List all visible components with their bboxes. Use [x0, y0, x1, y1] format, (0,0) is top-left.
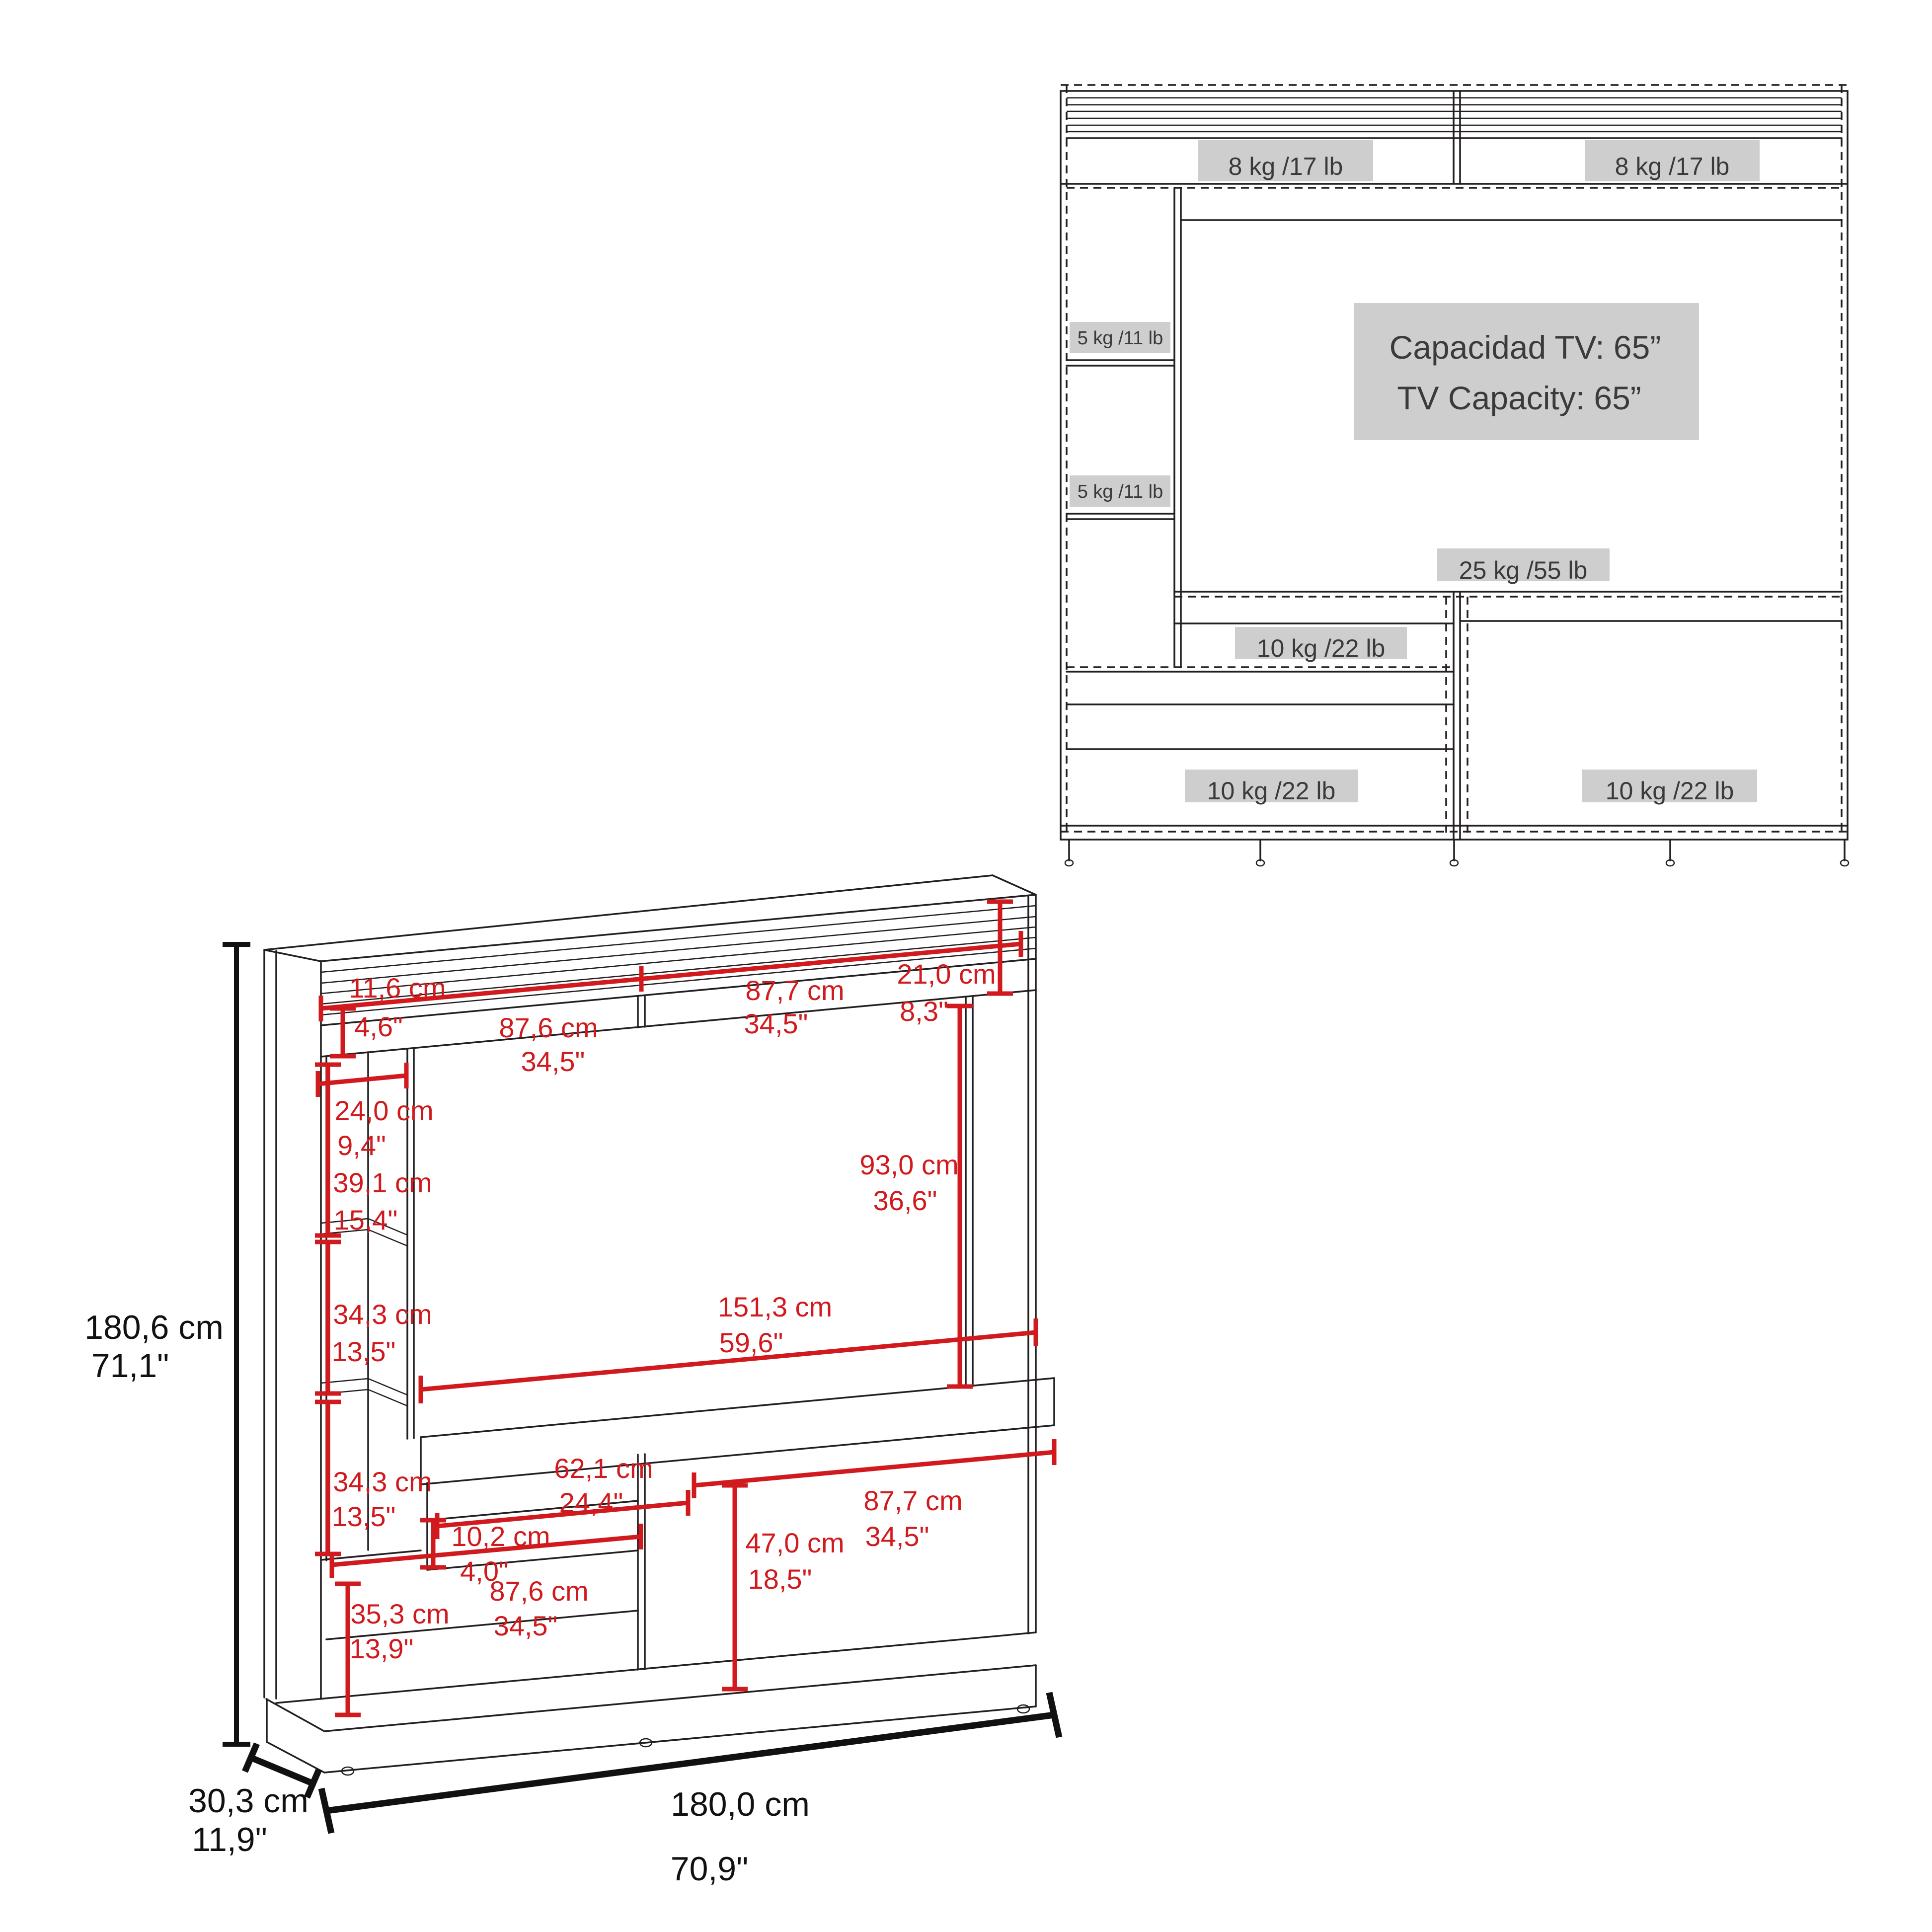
dim-tv-opening-width: 151,3 cm 59,6": [421, 1291, 1036, 1403]
dim-tower-width: 24,0 cm 9,4": [318, 1063, 434, 1161]
weight-label-text: 8 kg /17 lb: [1615, 153, 1730, 180]
weight-label-text: 8 kg /17 lb: [1229, 153, 1343, 180]
dim-tv-opening-height: 93,0 cm 36,6": [859, 1006, 973, 1387]
dim-overall-height-cm: 180,6 cm: [84, 1309, 224, 1346]
dim-cabinet-left-width-in: 34,5": [494, 1610, 558, 1641]
dim-tv-opening-height-cm: 93,0 cm: [859, 1149, 958, 1180]
dim-tower-mid-section-in: 13,5": [332, 1336, 396, 1367]
dim-tower-top-section-cm: 39,1 cm: [333, 1167, 432, 1198]
dim-cabinet-right-height-in: 18,5": [748, 1563, 812, 1595]
tv-capacity-line1: Capacidad TV: 65”: [1390, 329, 1661, 366]
dim-overall-width-in: 70,9": [671, 1850, 749, 1888]
weight-label-text: 10 kg /22 lb: [1257, 634, 1386, 662]
dim-top-shelf-height-in: 4,6": [354, 1011, 403, 1042]
dim-top-left-span-cm: 87,6 cm: [499, 1012, 598, 1043]
front-view-diagram: 8 kg /17 lb 8 kg /17 lb 5 kg /11 lb 5 kg…: [1061, 85, 1849, 866]
dim-cabinet-right-width-in: 34,5": [865, 1521, 929, 1552]
tv-capacity-label: Capacidad TV: 65” TV Capacity: 65”: [1354, 303, 1699, 440]
dim-tower-bottom-section-in: 13,5": [332, 1501, 396, 1532]
dim-overall-width-cm: 180,0 cm: [671, 1785, 810, 1823]
dim-media-shelf-width-cm: 62,1 cm: [554, 1453, 653, 1484]
furniture-spec-sheet: 8 kg /17 lb 8 kg /17 lb 5 kg /11 lb 5 kg…: [0, 0, 1932, 1932]
dim-cabinet-right-width-cm: 87,7 cm: [863, 1485, 962, 1516]
dim-top-right-span-cm: 87,7 cm: [745, 975, 844, 1006]
dim-overall-depth: 30,3 cm 11,9": [188, 1744, 319, 1858]
dim-overall-height-in: 71,1": [91, 1347, 169, 1385]
weight-label-text: 25 kg /55 lb: [1459, 556, 1588, 584]
front-view-feet: [1065, 840, 1849, 866]
dim-top-right-span-in: 34,5": [744, 1008, 808, 1039]
tv-capacity-line2: TV Capacity: 65”: [1397, 380, 1641, 416]
dim-overall-height: 180,6 cm 71,1": [84, 944, 250, 1744]
dim-overall-depth-in: 11,9": [192, 1821, 267, 1858]
dim-cabinet-right-height-cm: 47,0 cm: [745, 1527, 844, 1558]
weight-label-hutch-left: 8 kg /17 lb: [1198, 140, 1373, 181]
weight-label-side-lower: 5 kg /11 lb: [1070, 475, 1170, 507]
weight-label-text: 10 kg /22 lb: [1606, 777, 1734, 805]
dim-tower-width-cm: 24,0 cm: [334, 1095, 433, 1126]
weight-label-text: 5 kg /11 lb: [1078, 328, 1163, 349]
dim-cabinet-left-width-cm: 87,6 cm: [489, 1575, 588, 1607]
weight-label-tv-shelf: 25 kg /55 lb: [1437, 548, 1610, 584]
weight-label-text: 10 kg /22 lb: [1207, 777, 1336, 805]
weight-label-hutch-right: 8 kg /17 lb: [1585, 140, 1760, 181]
dim-cabinet-right-height: 47,0 cm 18,5": [722, 1485, 845, 1689]
dim-tv-opening-width-in: 59,6": [719, 1327, 783, 1358]
weight-label-middle-shelf: 10 kg /22 lb: [1235, 627, 1407, 662]
dim-cabinet-left-height-cm: 35,3 cm: [350, 1598, 449, 1629]
dim-hutch-height-cm: 21,0 cm: [897, 958, 996, 990]
front-view-structure: [1061, 91, 1848, 840]
dim-tower-bottom-section-cm: 34,3 cm: [333, 1466, 432, 1497]
dim-top-left-span-in: 34,5": [521, 1046, 585, 1077]
weight-label-cabinet-left: 10 kg /22 lb: [1185, 770, 1358, 805]
dim-hutch-height-in: 8,3": [900, 996, 948, 1027]
weight-label-cabinet-right: 10 kg /22 lb: [1582, 770, 1757, 805]
dim-cabinet-left-height-in: 13,9": [350, 1633, 414, 1664]
dim-media-shelf-width-in: 24,4": [559, 1487, 623, 1518]
dim-tv-opening-height-in: 36,6": [873, 1185, 937, 1216]
dim-top-shelf-height: 11,6 cm 4,6": [330, 972, 446, 1056]
dim-tv-opening-width-cm: 151,3 cm: [718, 1291, 832, 1322]
dim-overall-depth-cm: 30,3 cm: [188, 1782, 309, 1820]
dim-tower-width-in: 9,4": [337, 1130, 386, 1161]
dim-tower-top-section-in: 15,4": [334, 1204, 398, 1236]
dimension-view-diagram: 11,6 cm 4,6" 87,6 cm 34,5" 87,7 cm 34,5"…: [84, 875, 1059, 1888]
weight-label-text: 5 kg /11 lb: [1078, 481, 1163, 502]
weight-label-side-upper: 5 kg /11 lb: [1070, 322, 1170, 353]
dim-tower-mid-section-cm: 34,3 cm: [333, 1299, 432, 1330]
diagram-canvas: 8 kg /17 lb 8 kg /17 lb 5 kg /11 lb 5 kg…: [0, 0, 1932, 1932]
